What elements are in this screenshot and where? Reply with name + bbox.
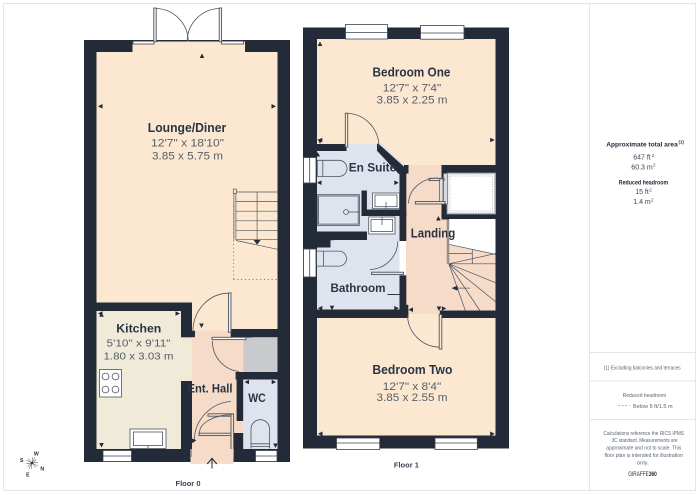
svg-text:floor plan is intended for ill: floor plan is intended for illustration [604, 453, 683, 459]
svg-text:Calculations reference the RIC: Calculations reference the RICS IPMS [603, 431, 684, 437]
svg-text:only.: only. [637, 460, 649, 466]
svg-text:3.85 x 5.75 m: 3.85 x 5.75 m [152, 150, 223, 162]
svg-text:3.85 x 2.55 m: 3.85 x 2.55 m [377, 392, 448, 404]
svg-text:Bedroom Two: Bedroom Two [372, 362, 452, 377]
svg-text:5'10" x 9'11": 5'10" x 9'11" [107, 339, 172, 350]
svg-text:(1) Excluding balconies and te: (1) Excluding balconies and terraces [604, 365, 681, 371]
svg-text:3.85 x 2.25 m: 3.85 x 2.25 m [377, 95, 448, 107]
svg-text:60.3 m: 60.3 m [631, 164, 653, 171]
svg-text:W: W [34, 452, 39, 458]
svg-text:Reduced headroom: Reduced headroom [619, 179, 669, 186]
svg-text:approximate and not to scale.: approximate and not to scale. This [606, 446, 681, 452]
svg-text:E: E [26, 473, 30, 479]
svg-text:1.80 x 3.03 m: 1.80 x 3.03 m [104, 352, 174, 363]
svg-text:N: N [40, 467, 44, 473]
svg-text:2: 2 [651, 198, 654, 203]
svg-text:2: 2 [653, 163, 656, 168]
svg-text:Lounge/Diner: Lounge/Diner [148, 120, 227, 135]
svg-text:Floor 0: Floor 0 [175, 479, 200, 488]
svg-text:2: 2 [652, 153, 655, 158]
svg-text:12'7" x 7'4": 12'7" x 7'4" [383, 83, 442, 95]
svg-text:(1): (1) [679, 140, 685, 145]
svg-text:En Suite: En Suite [349, 161, 397, 174]
svg-text:2: 2 [649, 187, 652, 192]
svg-text:S: S [20, 458, 24, 464]
svg-text:Reduced headroom: Reduced headroom [623, 393, 667, 399]
svg-text:Landing: Landing [411, 226, 456, 241]
svg-text:GIRAFFE360: GIRAFFE360 [628, 471, 657, 478]
svg-text:Ent. Hall: Ent. Hall [188, 382, 233, 395]
svg-text:Floor 1: Floor 1 [394, 461, 419, 470]
svg-text:12'7" x 18'10": 12'7" x 18'10" [151, 138, 224, 150]
svg-text:Approximate total area: Approximate total area [606, 142, 678, 149]
svg-text:Kitchen: Kitchen [116, 321, 161, 335]
svg-text:1.4 m: 1.4 m [633, 199, 651, 206]
svg-text:Bathroom: Bathroom [331, 281, 386, 295]
svg-text:WC: WC [248, 391, 266, 405]
svg-text:3C standard. Measurements are: 3C standard. Measurements are [612, 438, 679, 444]
svg-text:647 ft: 647 ft [633, 155, 651, 162]
svg-text:15 ft: 15 ft [635, 189, 649, 196]
svg-text:Below 5 ft/1.5 m: Below 5 ft/1.5 m [633, 404, 673, 410]
svg-text:Bedroom One: Bedroom One [373, 65, 451, 80]
